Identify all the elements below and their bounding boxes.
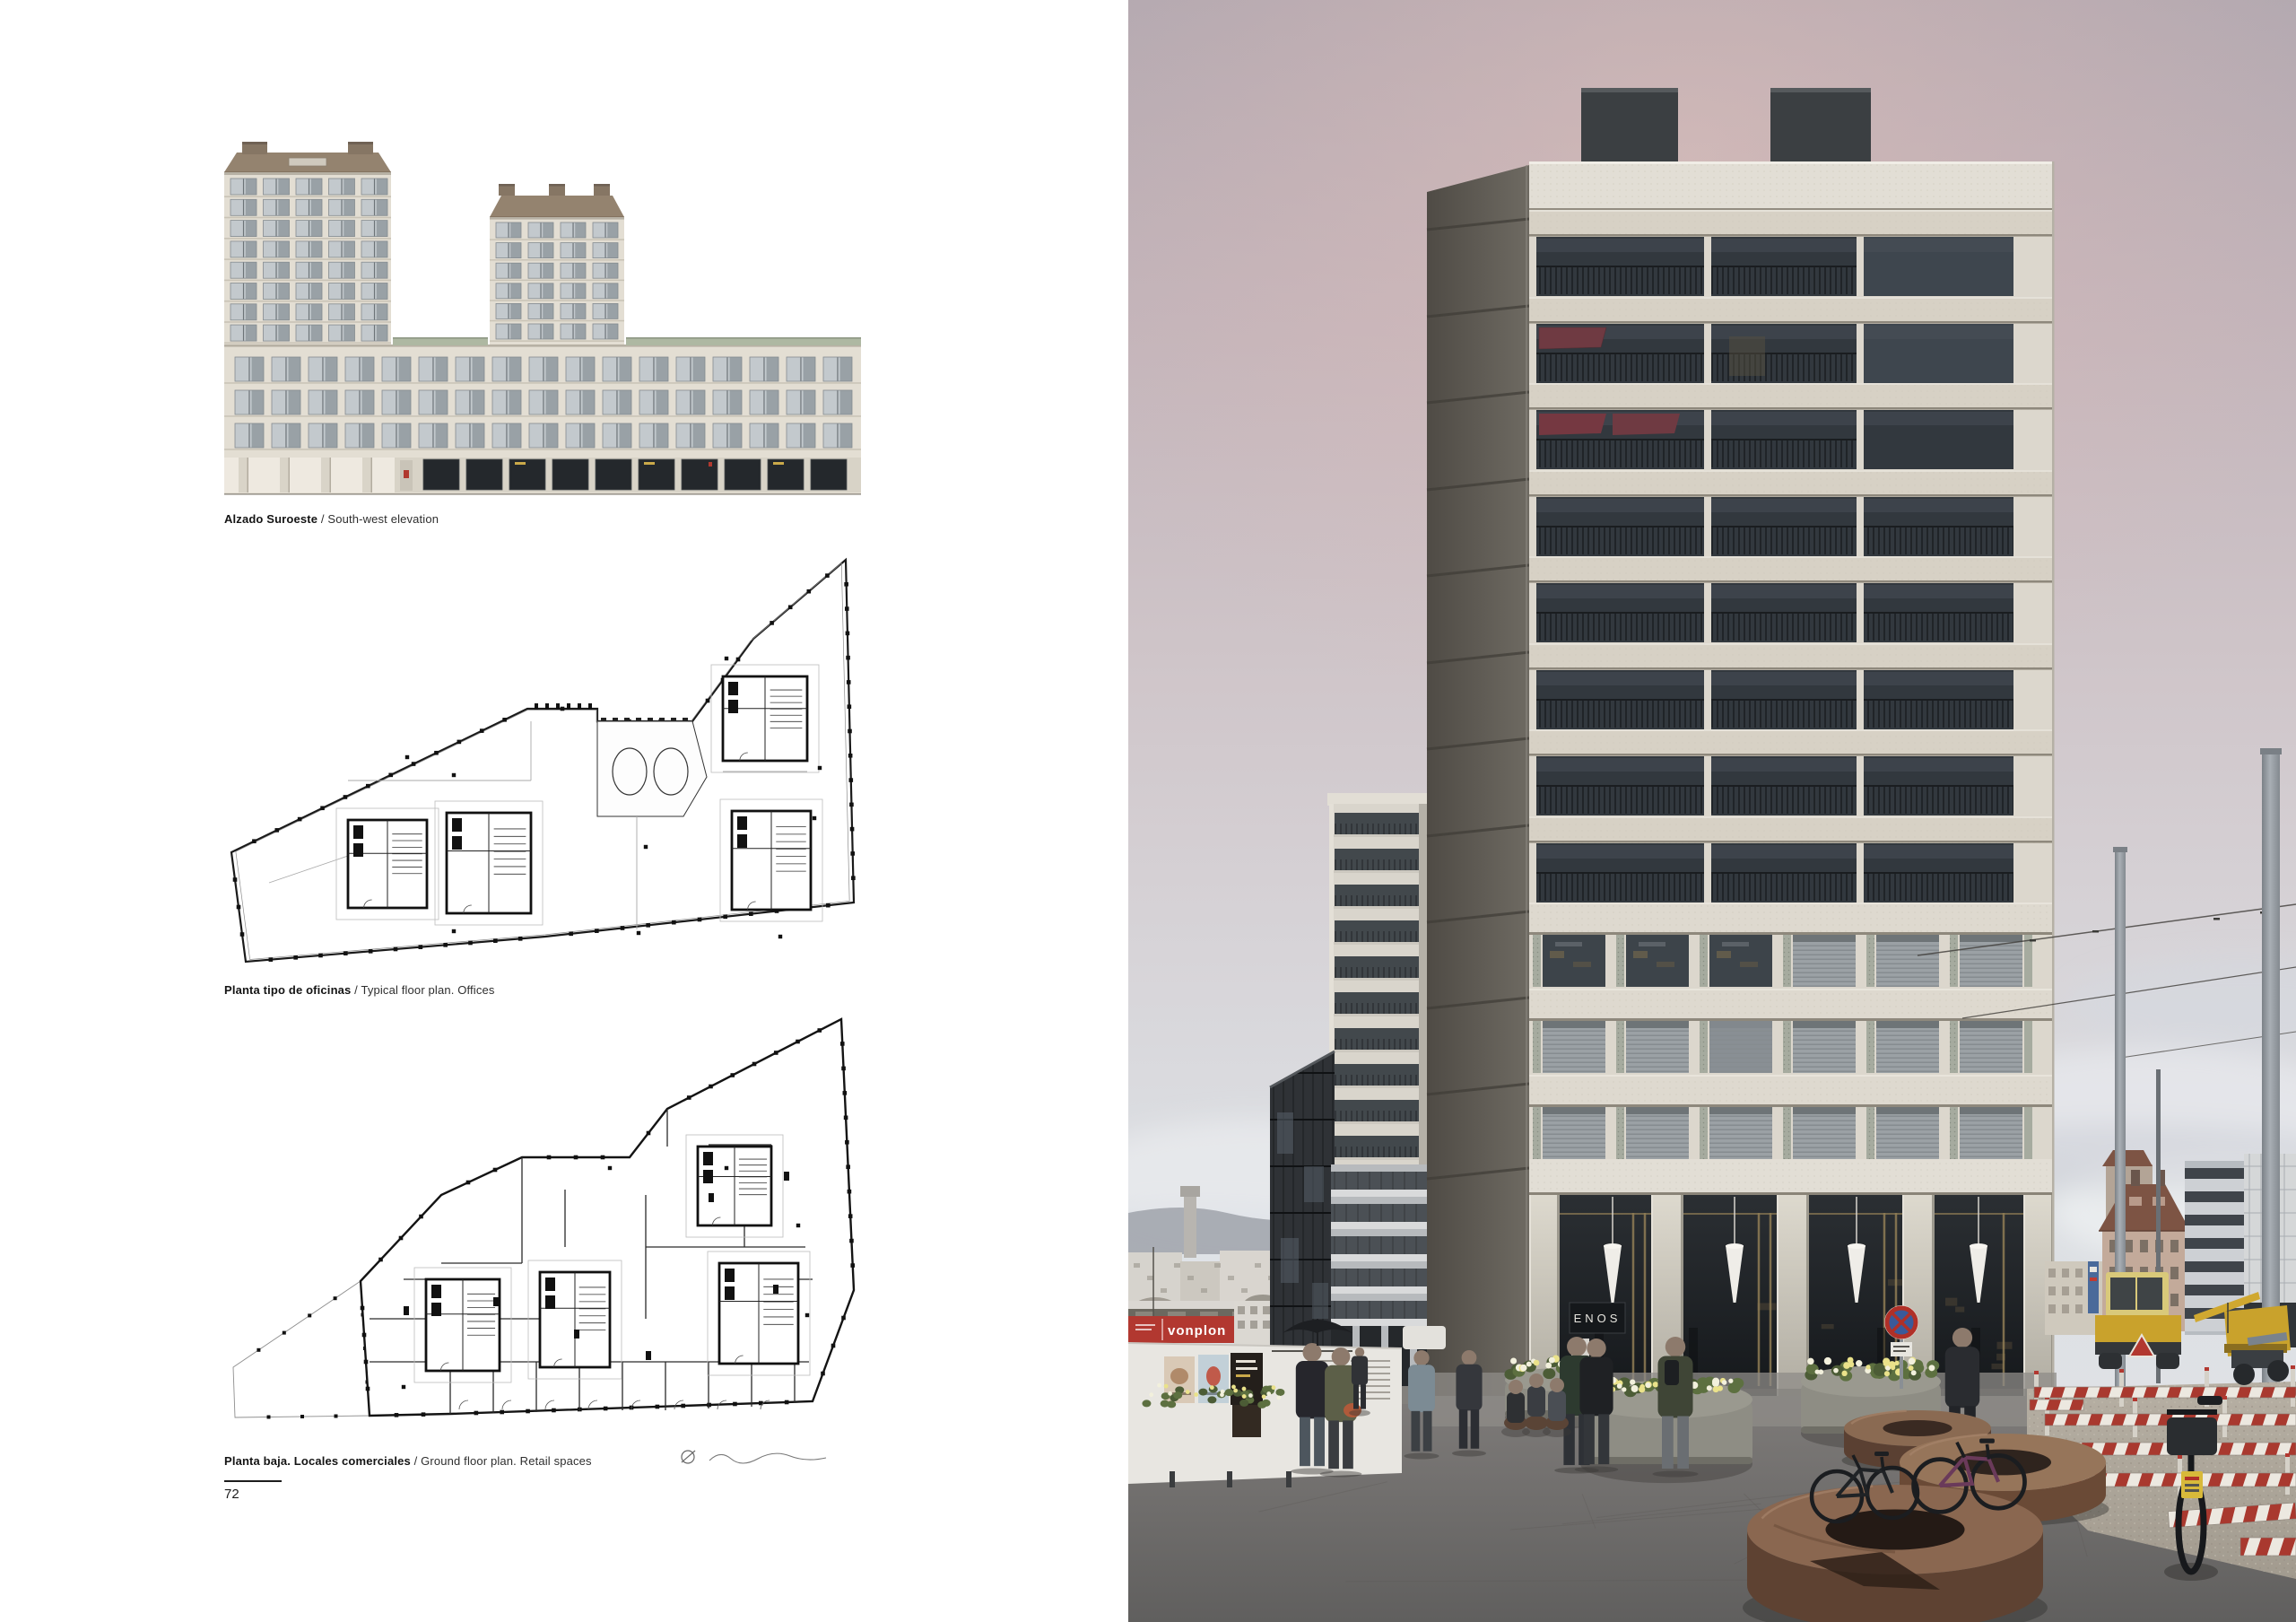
tower-side-face <box>1427 165 1529 1400</box>
typical-floor-plan-drawing <box>224 549 861 978</box>
caption-elevation-es: Alzado Suroeste <box>224 512 317 526</box>
main-tower: ENOS <box>1529 161 2055 1400</box>
caption-elevation: Alzado Suroeste / South-west elevation <box>224 512 439 526</box>
caption-typical-plan-es: Planta tipo de oficinas <box>224 983 351 997</box>
caption-ground-plan: Planta baja. Locales comerciales / Groun… <box>224 1454 592 1468</box>
caption-separator: / <box>411 1454 421 1468</box>
caption-ground-plan-es: Planta baja. Locales comerciales <box>224 1454 411 1468</box>
page-number-rule <box>224 1480 282 1482</box>
dark-glass-building <box>1270 1050 1336 1392</box>
page-number: 72 <box>224 1487 282 1502</box>
vonplon-sign-text: vonplon <box>1168 1323 1226 1339</box>
caption-typical-plan: Planta tipo de oficinas / Typical floor … <box>224 983 495 997</box>
building-photograph: ENOSvonplon <box>1128 0 2296 1622</box>
caption-ground-plan-en: Ground floor plan. Retail spaces <box>421 1454 592 1468</box>
secondary-tower <box>1327 793 1428 1184</box>
elevation-drawing <box>224 142 861 502</box>
architect-signature-mark <box>677 1441 848 1473</box>
book-page: Alzado Suroeste / South-west elevation P… <box>0 0 2296 1622</box>
enos-sign-text: ENOS <box>1574 1312 1622 1325</box>
ground-floor-plan-drawing <box>224 1010 861 1443</box>
caption-separator: / <box>351 983 361 997</box>
caption-elevation-en: South-west elevation <box>327 512 439 526</box>
caption-separator: / <box>317 512 327 526</box>
caption-typical-plan-en: Typical floor plan. Offices <box>361 983 494 997</box>
page-number-block: 72 <box>224 1480 282 1502</box>
